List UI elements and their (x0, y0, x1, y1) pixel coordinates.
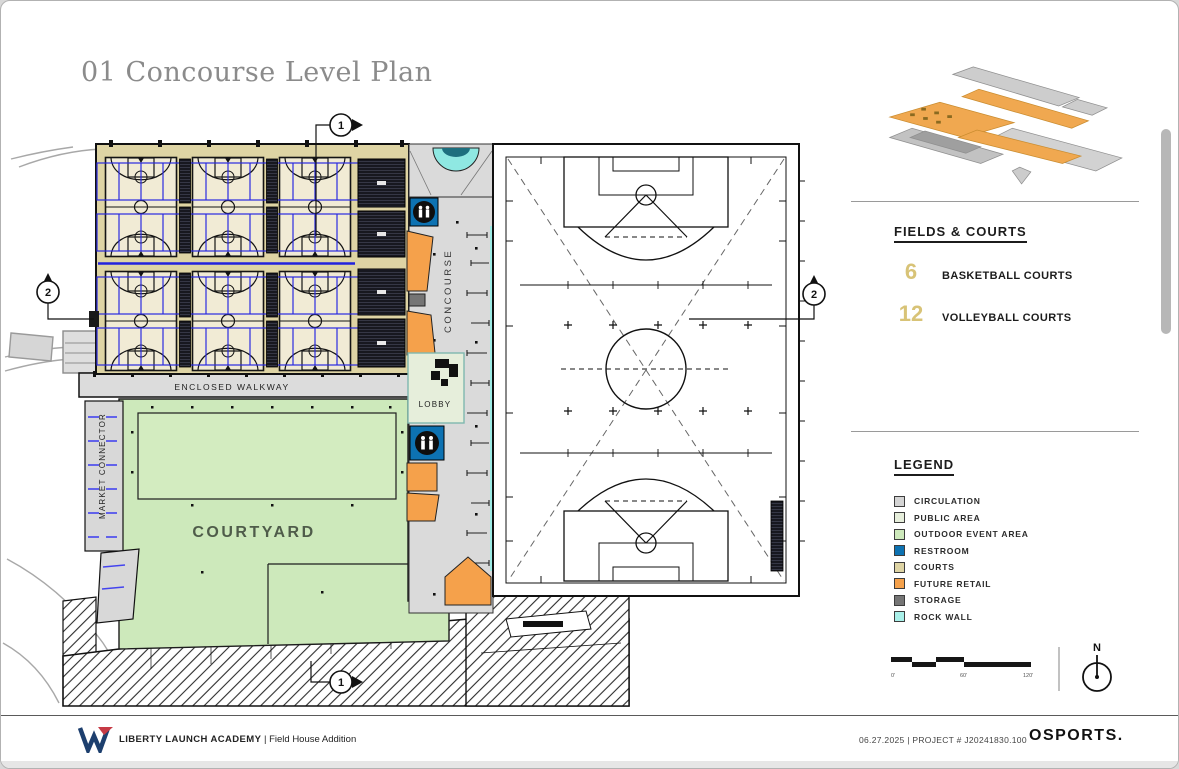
svg-text:1: 1 (338, 677, 344, 689)
svg-text:60': 60' (960, 673, 967, 679)
legend-swatch (894, 529, 905, 540)
client-name: LIBERTY LAUNCH ACADEMY (119, 734, 261, 745)
svg-text:2: 2 (45, 287, 51, 299)
legend-item: PUBLIC AREA (894, 512, 1144, 523)
courtyard-area: COURTYARD (119, 399, 449, 649)
concourse-strip: CONCOURSE (407, 144, 493, 613)
concourse-label: CONCOURSE (443, 249, 454, 333)
legend-item: CIRCULATION (894, 496, 1144, 507)
legend-swatch (894, 496, 905, 507)
legend-swatch (894, 545, 905, 556)
basketball-courts-hall (89, 140, 409, 374)
legend-section: LEGEND CIRCULATION PUBLIC AREA OUTDOOR E… (894, 456, 1144, 622)
field-house-court (493, 144, 805, 596)
key-plan-axon (873, 43, 1133, 193)
restroom-upper (410, 198, 438, 226)
legend-item: STORAGE (894, 595, 1144, 606)
floor-plan-drawing: COURTYARD MARKET CONNECTOR (1, 1, 851, 711)
legend-swatch (894, 595, 905, 606)
svg-text:120': 120' (1023, 673, 1033, 679)
volleyball-count: 12 (894, 301, 928, 327)
legend-swatch (894, 512, 905, 523)
firm-logo-icon (77, 725, 115, 753)
restroom-lower (410, 426, 444, 460)
plan-sheet: 01 Concourse Level Plan (0, 0, 1179, 769)
lobby-label: LOBBY (419, 400, 452, 409)
basketball-label: BASKETBALL COURTS (942, 270, 1073, 282)
legend-item: OUTDOOR EVENT AREA (894, 529, 1144, 540)
footer-date-project-number: 06.27.2025 | PROJECT # J20241830.100 (859, 735, 1027, 745)
market-connector-label: MARKET CONNECTOR (98, 413, 107, 519)
stat-row-basketball: 6 BASKETBALL COURTS (894, 259, 1144, 285)
svg-text:2: 2 (811, 289, 817, 301)
courtyard-label: COURTYARD (192, 524, 315, 541)
legend-heading: LEGEND (894, 457, 954, 476)
legend-item: RESTROOM (894, 545, 1144, 556)
legend-swatch (894, 562, 905, 573)
stat-row-volleyball: 12 VOLLEYBALL COURTS (894, 301, 1144, 327)
sidebar-divider-bottom (851, 431, 1139, 432)
volleyball-label: VOLLEYBALL COURTS (942, 312, 1071, 324)
footer-divider (1, 715, 1178, 716)
north-arrow-icon: N (1083, 642, 1111, 691)
osports-logo: OSPORTS. (1029, 727, 1124, 745)
legend-swatch (894, 611, 905, 622)
scrollbar-thumb[interactable] (1161, 129, 1171, 334)
svg-text:N: N (1093, 642, 1101, 654)
basketball-count: 6 (894, 259, 928, 285)
lobby-area: LOBBY (408, 353, 464, 423)
fields-courts-heading: FIELDS & COURTS (894, 224, 1027, 243)
svg-text:1: 1 (338, 120, 344, 132)
storage-small (409, 294, 425, 306)
page-edge (1, 761, 1178, 768)
legend-item: COURTS (894, 562, 1144, 573)
scale-bar (891, 657, 1031, 667)
footer-project-title: LIBERTY LAUNCH ACADEMY | Field House Add… (119, 734, 356, 745)
footer: LIBERTY LAUNCH ACADEMY | Field House Add… (1, 717, 1178, 762)
project-name: | Field House Addition (264, 734, 356, 745)
sidebar-divider-top (851, 201, 1139, 202)
legend-item: ROCK WALL (894, 611, 1144, 622)
legend-item: FUTURE RETAIL (894, 578, 1144, 589)
svg-text:0': 0' (891, 673, 895, 679)
enclosed-walkway-label: ENCLOSED WALKWAY (174, 382, 289, 392)
legend-swatch (894, 578, 905, 589)
fields-courts-section: FIELDS & COURTS 6 BASKETBALL COURTS 12 V… (894, 223, 1144, 327)
section-marker-2-left: 2 (37, 273, 94, 319)
scale-bar-and-north: 0' 60' 120' N (879, 639, 1129, 701)
